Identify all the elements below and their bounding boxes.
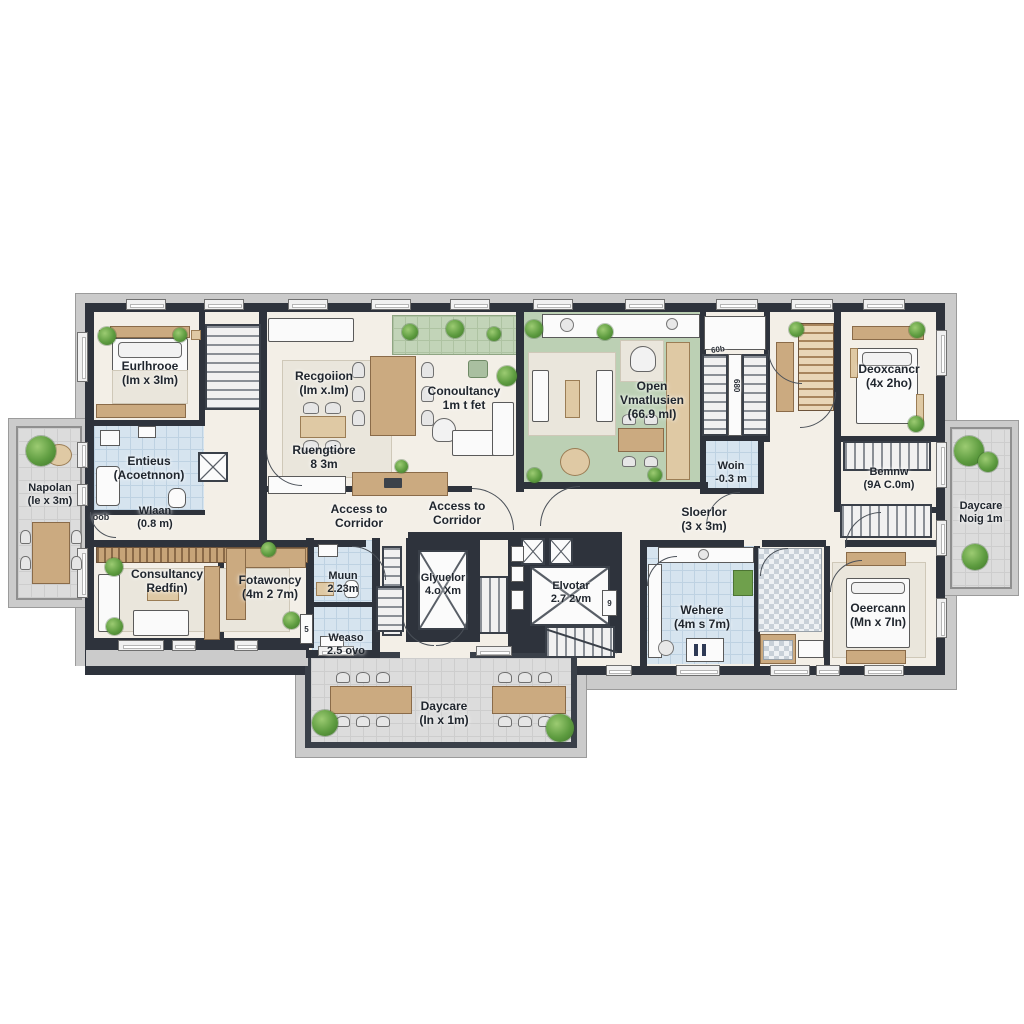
laptop <box>384 478 402 488</box>
staircase <box>702 354 728 436</box>
chair <box>71 556 82 570</box>
room-name: Conoultancy <box>428 384 501 398</box>
bottles <box>702 644 706 656</box>
room-name: Elvotar <box>552 580 589 592</box>
label-elevator-right: Elvotar 2.7 2vm <box>538 580 604 605</box>
staircase <box>742 354 768 436</box>
shaft <box>511 566 524 582</box>
plant-box <box>733 570 753 596</box>
room-dims: 2.7 2vm <box>538 593 604 606</box>
chair <box>20 556 31 570</box>
chair <box>336 716 350 727</box>
window <box>450 299 490 310</box>
wall <box>824 546 830 666</box>
window <box>77 442 88 468</box>
label-daycare-right: Daycare Noig 1m <box>946 500 1016 525</box>
room-dims: (In x 1m) <box>396 714 492 728</box>
room-dims: Noig 1m <box>946 513 1016 526</box>
corridor-dims: (3 x 3m) <box>658 520 750 534</box>
plant <box>446 320 464 338</box>
room-name: Consultancy <box>131 567 203 581</box>
room-dims: (le x 3m) <box>14 495 86 508</box>
label-access-2: Access to Corridor <box>418 500 496 528</box>
plant <box>962 544 988 570</box>
label-oob: oob <box>88 512 114 522</box>
chair <box>303 402 319 414</box>
window <box>533 299 573 310</box>
chair <box>518 672 532 683</box>
room-dims: (4x 2ho) <box>843 377 935 391</box>
plant <box>395 460 408 473</box>
room-dims: (4m s 7m) <box>662 618 742 632</box>
bottles <box>694 644 698 656</box>
window <box>77 332 88 382</box>
label-bedroom-tr: Deoxcancr (4x 2ho) <box>843 363 935 391</box>
label-bemnw: Bemnw (9A C.0m) <box>843 466 935 491</box>
sofa <box>133 610 189 636</box>
chair <box>498 672 512 683</box>
window <box>172 640 196 651</box>
room-name: Daycare <box>960 500 1003 512</box>
label-consultancy-bl: Consultancy Redfin) <box>112 568 222 596</box>
window <box>288 299 328 310</box>
shaft <box>198 452 228 482</box>
shaft <box>511 590 524 610</box>
window <box>234 640 258 651</box>
shaft <box>511 546 524 562</box>
window <box>676 665 720 676</box>
room-name: Oeercann <box>850 601 905 615</box>
label-muun: Muun 2.23m <box>314 570 372 595</box>
plant <box>909 322 925 338</box>
room-name: Wehere <box>680 603 723 617</box>
sofa <box>532 370 549 422</box>
plant <box>908 416 924 432</box>
label-consultancy-top: Conoultancy 1m t fet <box>416 385 512 413</box>
chair <box>356 672 370 683</box>
wall <box>700 436 764 441</box>
chair <box>498 716 512 727</box>
label-deercann: Oeercann (Mn x 7In) <box>836 602 920 630</box>
window <box>816 665 840 676</box>
room-name: Napolan <box>28 482 71 494</box>
window <box>126 299 166 310</box>
window <box>936 330 947 376</box>
plant <box>597 324 613 340</box>
wall <box>516 312 524 492</box>
wall <box>640 540 744 547</box>
shaft <box>549 538 573 565</box>
x-mark <box>523 540 543 563</box>
room-dims: 8 3m <box>274 458 374 472</box>
plant <box>106 618 123 635</box>
corridor-text: Corridor <box>418 514 496 528</box>
room-dims: (4m 2 7m) <box>228 588 312 602</box>
label-hall-tl: Wlaan (0.8 m) <box>112 505 198 530</box>
label-open-space: Open Vmatlusien (66.9 mI) <box>606 380 698 421</box>
green-chair <box>468 360 488 378</box>
label-wehere: Wehere (4m s 7m) <box>662 604 742 632</box>
shell-strip <box>86 650 308 666</box>
desk-chair <box>560 448 590 476</box>
cabinet <box>798 640 824 658</box>
tag-text: oob <box>93 512 110 522</box>
label-shaft-vertical: 680 <box>729 366 741 406</box>
window <box>371 299 411 310</box>
room-name-2: Vmatlusien <box>606 394 698 408</box>
plant <box>98 327 116 345</box>
pillow <box>118 342 182 358</box>
sink <box>138 426 156 438</box>
room-name: Daycare <box>421 699 468 713</box>
sink <box>666 318 678 330</box>
label-reception: Recgoiion (Im x.Im) <box>272 370 376 398</box>
door-tag: 9 <box>602 590 617 616</box>
window <box>118 640 164 651</box>
room-dims: (66.9 mI) <box>606 408 698 422</box>
window <box>936 520 947 556</box>
room-name: Weaso <box>328 632 363 644</box>
label-access-1: Access to Corridor <box>320 503 398 531</box>
window <box>606 665 632 676</box>
window <box>864 665 904 676</box>
sink <box>318 544 338 557</box>
room-dims: (Im x 3Im) <box>98 374 202 388</box>
room-dims: 4.o Xm <box>410 585 476 598</box>
wall <box>834 312 841 512</box>
x-mark <box>200 454 226 480</box>
room-name: Eurlhrooe <box>122 359 179 373</box>
corridor-text: Access to <box>331 502 388 516</box>
wall <box>640 540 647 666</box>
dresser <box>96 404 186 418</box>
window <box>770 665 810 676</box>
bench-cover <box>763 640 793 660</box>
sink <box>698 549 709 560</box>
plant <box>789 322 804 337</box>
room-name: Entieus <box>127 454 170 468</box>
plant <box>312 710 338 736</box>
room-dims: (Mn x 7In) <box>836 616 920 630</box>
plant <box>978 452 998 472</box>
door-gap <box>400 644 470 658</box>
chair <box>356 716 370 727</box>
shaft-text: 60b <box>711 344 726 355</box>
plant <box>283 612 300 629</box>
sink <box>100 430 120 446</box>
corridor-name: Sloerlor <box>681 505 726 519</box>
room-name: Bemnw <box>869 466 908 478</box>
chair <box>336 672 350 683</box>
nightstand <box>191 330 201 340</box>
window <box>936 598 947 638</box>
chair <box>376 716 390 727</box>
plant <box>525 320 543 338</box>
door-tag-text: 9 <box>607 599 611 608</box>
plant <box>497 366 517 386</box>
window <box>204 299 244 310</box>
wall <box>516 482 708 489</box>
chair <box>622 456 636 467</box>
window <box>863 299 905 310</box>
chair <box>421 362 434 378</box>
label-elevator-left: Glyuelor 4.o Xm <box>410 572 476 597</box>
corridor-text: Corridor <box>320 517 398 531</box>
chair <box>325 402 341 414</box>
chair <box>71 530 82 544</box>
room-name: Muun <box>328 570 357 582</box>
label-napolan: Napolan (le x 3m) <box>14 482 86 507</box>
room-name: Woin <box>718 460 745 472</box>
window <box>936 442 947 488</box>
chair <box>518 716 532 727</box>
plant <box>487 327 501 341</box>
label-daycare-bottom: Daycare (In x 1m) <box>396 700 492 728</box>
table <box>492 686 566 714</box>
room-dims: -0.3 m <box>702 473 760 486</box>
room-dims: 2.5 ovo <box>314 645 378 658</box>
room-dims: (0.8 m) <box>112 518 198 531</box>
room-dims: 1m t fet <box>416 399 512 413</box>
room-name: Open <box>637 379 668 393</box>
room-name: Deoxcancr <box>858 362 919 376</box>
conference-table <box>370 356 416 436</box>
label-sloerlor: Sloerlor (3 x 3m) <box>658 506 750 534</box>
room-name: Wlaan <box>139 505 171 517</box>
plant <box>527 468 542 483</box>
armchair <box>630 346 656 372</box>
stool <box>658 640 674 656</box>
plant <box>173 328 187 342</box>
room-name: Ruengtiore <box>292 443 355 457</box>
room-dims: Redfin) <box>112 582 222 596</box>
window <box>791 299 833 310</box>
label-reception-desk: Ruengtiore 8 3m <box>274 444 374 472</box>
plant <box>546 714 574 742</box>
desk <box>300 416 346 438</box>
plant <box>26 436 56 466</box>
room-dims: (9A C.0m) <box>843 479 935 492</box>
sink <box>560 318 574 332</box>
chair <box>376 672 390 683</box>
x-mark <box>551 540 571 563</box>
dresser <box>846 650 906 664</box>
chair <box>644 456 658 467</box>
room-name: Glyuelor <box>421 572 466 584</box>
label-weaso: Weaso 2.5 ovo <box>314 632 378 657</box>
plant <box>648 468 662 482</box>
chair <box>538 672 552 683</box>
window <box>476 646 512 656</box>
table <box>618 428 664 452</box>
shaft-tag-text: 5 <box>304 625 308 634</box>
wall <box>306 602 376 607</box>
shaft-tag: 5 <box>300 614 313 644</box>
wall <box>762 540 826 547</box>
staircase <box>376 586 404 632</box>
floor-plan: 9 5 <box>0 0 1024 1024</box>
room-dims: (Im x.Im) <box>272 384 376 398</box>
room-dims: (Acoetnnon) <box>96 469 202 483</box>
label-bedroom-tl: Eurlhrooe (Im x 3Im) <box>98 360 202 388</box>
room-name: Fotawoncy <box>239 573 302 587</box>
table <box>32 522 70 584</box>
staircase <box>205 324 261 410</box>
label-bathroom-tl: Entieus (Acoetnnon) <box>96 455 202 483</box>
staircase <box>478 576 508 634</box>
plant <box>261 542 276 557</box>
room-dims: 2.23m <box>314 583 372 596</box>
plant <box>402 324 418 340</box>
label-fotawoncy: Fotawoncy (4m 2 7m) <box>228 574 312 602</box>
label-woin: Woin -0.3 m <box>702 460 760 485</box>
shaft <box>521 538 545 565</box>
chair <box>352 410 365 426</box>
window <box>625 299 665 310</box>
coffee-table <box>565 380 580 418</box>
chair <box>20 530 31 544</box>
room-name: Recgoiion <box>295 369 353 383</box>
corridor-text: Access to <box>429 499 486 513</box>
sofa <box>268 318 354 342</box>
shaft-text: 680 <box>732 379 741 392</box>
window <box>716 299 758 310</box>
